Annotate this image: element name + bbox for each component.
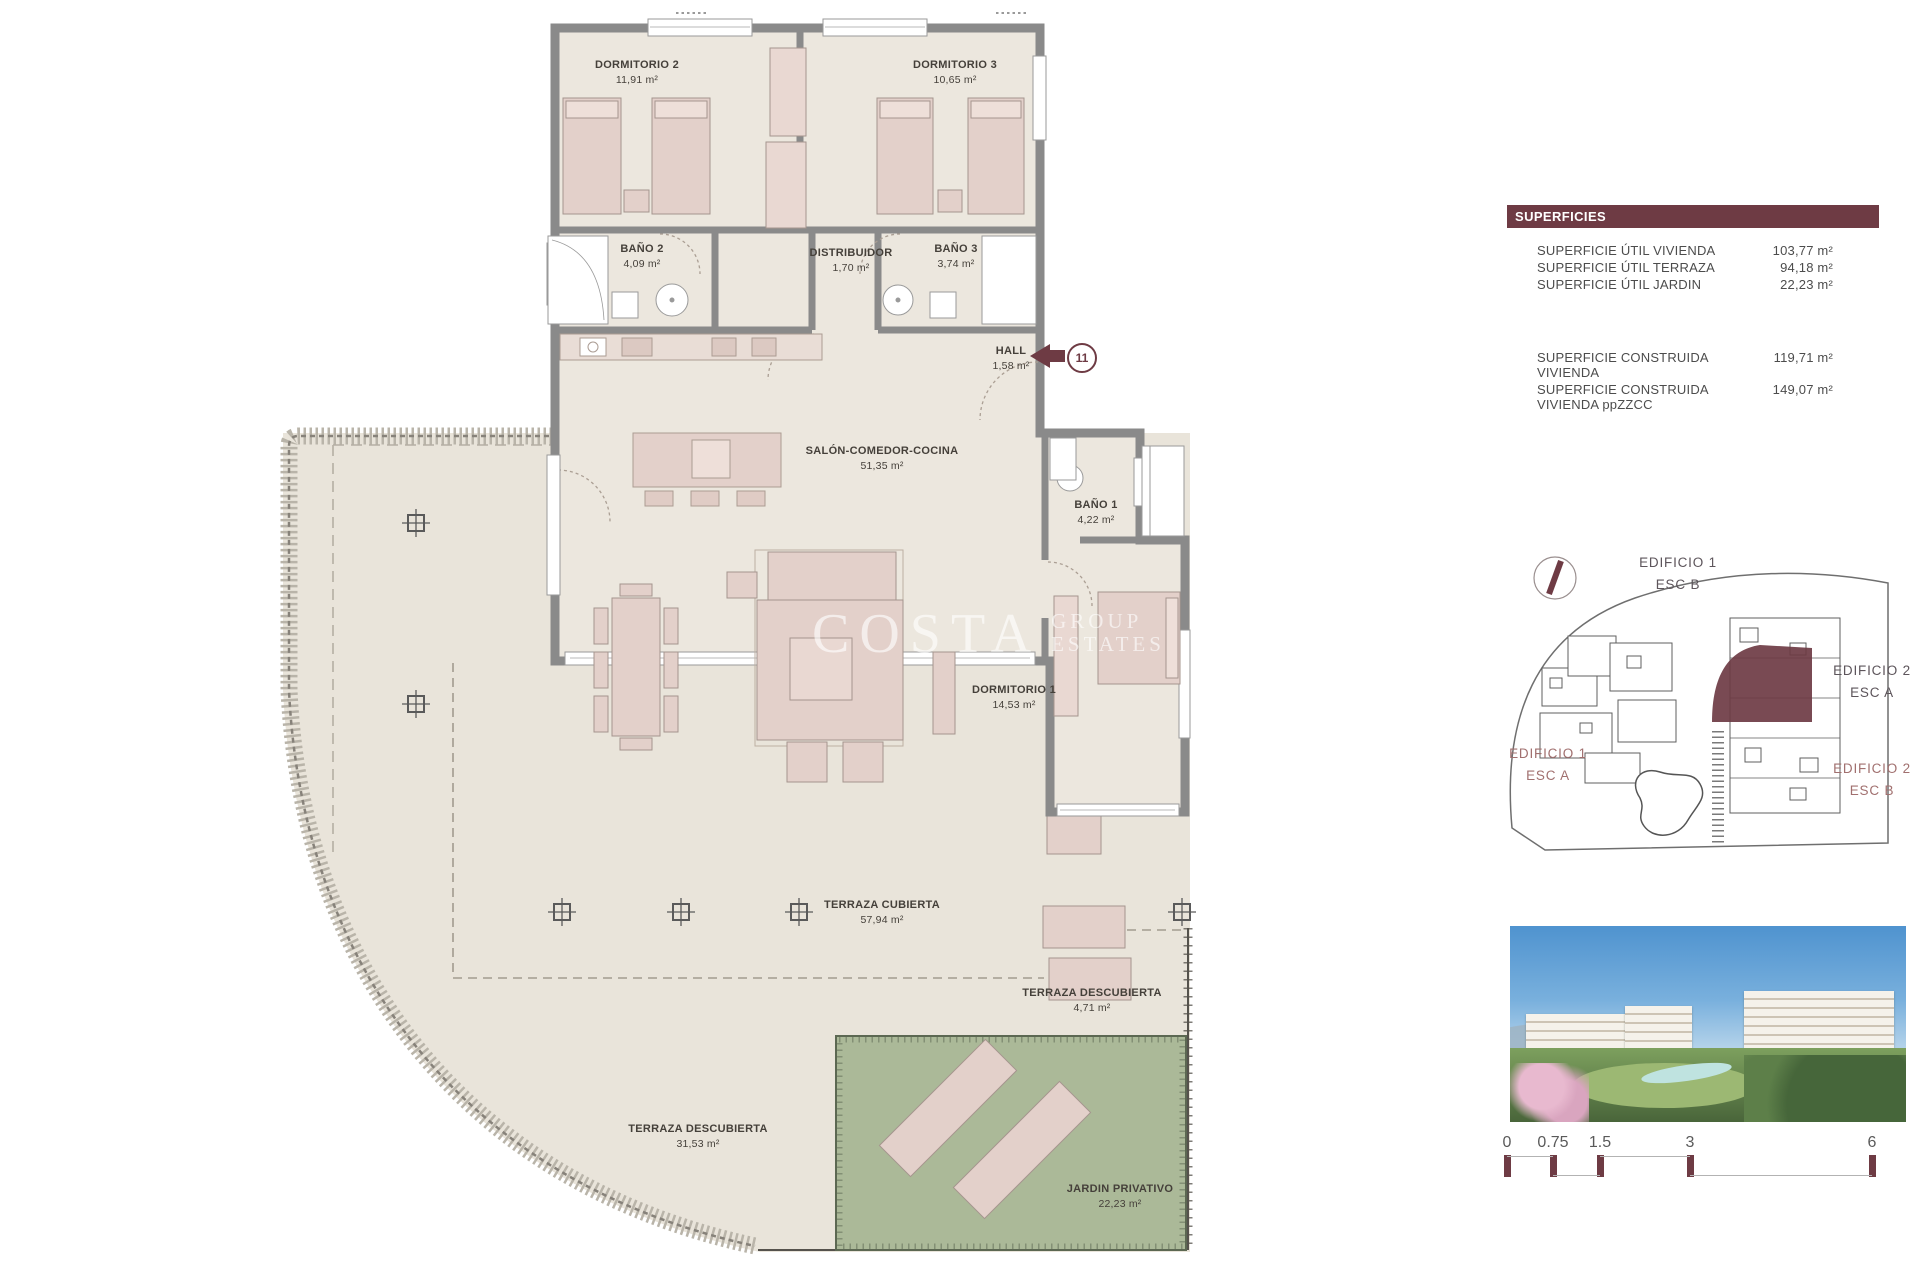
- superficies-title: SUPERFICIES: [1507, 205, 1879, 228]
- scale-line: [1553, 1175, 1600, 1176]
- siteplan-label-edificio2-escA: EDIFICIO 2 ESC A: [1833, 660, 1911, 705]
- superficies-panel: SUPERFICIES SUPERFICIE ÚTIL VIVIENDA 103…: [1507, 205, 1879, 413]
- photo-bushes: [1744, 1055, 1906, 1122]
- dining-set: [594, 584, 678, 750]
- table-row: SUPERFICIE CONSTRUIDA VIVIENDA 119,71 m²: [1507, 349, 1879, 381]
- scale-bar: 0 0.75 1.5 3 6: [1502, 1134, 1882, 1180]
- siteplan-label-edificio1-escA: EDIFICIO 1 ESC A: [1509, 743, 1587, 788]
- floor-plan-drawing: [0, 0, 1240, 1280]
- room-label-bano2: BAÑO 2 4,09 m²: [620, 242, 663, 271]
- scale-line: [1507, 1156, 1553, 1157]
- table-row: SUPERFICIE CONSTRUIDA VIVIENDA ppZZCC 14…: [1507, 381, 1879, 413]
- room-label-distribuidor: DISTRIBUIDOR 1,70 m²: [809, 246, 892, 275]
- scale-tick: [1550, 1155, 1557, 1177]
- entry-marker: 11: [1030, 342, 1100, 370]
- development-render-photo: [1510, 926, 1906, 1122]
- photo-blossom-tree: [1510, 1063, 1589, 1122]
- scale-label: 0: [1503, 1134, 1512, 1152]
- room-label-salon: SALÓN-COMEDOR-COCINA 51,35 m²: [806, 444, 959, 473]
- scale-label: 6: [1868, 1134, 1877, 1152]
- compass-icon: [1534, 557, 1576, 599]
- scale-label: 1.5: [1589, 1134, 1611, 1152]
- siteplan-label-edificio1-escB: EDIFICIO 1 ESC B: [1639, 552, 1717, 597]
- entry-arrow-tail: [1048, 350, 1065, 362]
- table-row: SUPERFICIE ÚTIL JARDIN 22,23 m²: [1507, 276, 1879, 293]
- room-label-terraza-descubierta-small: TERRAZA DESCUBIERTA 4,71 m²: [1022, 986, 1162, 1015]
- unit-number-badge: 11: [1067, 343, 1097, 373]
- table-row: SUPERFICIE ÚTIL TERRAZA 94,18 m²: [1507, 259, 1879, 276]
- room-label-bano3: BAÑO 3 3,74 m²: [934, 242, 977, 271]
- scale-tick: [1869, 1155, 1876, 1177]
- room-label-dormitorio1: DORMITORIO 1 14,53 m²: [972, 683, 1056, 712]
- room-label-bano1: BAÑO 1 4,22 m²: [1074, 498, 1117, 527]
- floor-plan-sheet: COSTA GROUP ESTATES 11 DORMITORIO 2 11,9…: [0, 0, 1920, 1280]
- site-pool: [1636, 771, 1703, 836]
- table-row: SUPERFICIE ÚTIL VIVIENDA 103,77 m²: [1507, 242, 1879, 259]
- entry-arrow-icon: [1030, 344, 1050, 368]
- scale-tick: [1687, 1155, 1694, 1177]
- scale-label: 3: [1686, 1134, 1695, 1152]
- room-label-dormitorio3: DORMITORIO 3 10,65 m²: [913, 58, 997, 87]
- scale-tick: [1504, 1155, 1511, 1177]
- scale-line: [1690, 1175, 1872, 1176]
- room-label-dormitorio2: DORMITORIO 2 11,91 m²: [595, 58, 679, 87]
- superficies-construida-rows: SUPERFICIE CONSTRUIDA VIVIENDA 119,71 m²…: [1507, 349, 1879, 413]
- room-label-terraza-cubierta: TERRAZA CUBIERTA 57,94 m²: [824, 898, 940, 927]
- room-label-terraza-descubierta-large: TERRAZA DESCUBIERTA 31,53 m²: [628, 1122, 768, 1151]
- siteplan-label-edificio2-escB: EDIFICIO 2 ESC B: [1833, 758, 1911, 803]
- scale-tick: [1597, 1155, 1604, 1177]
- room-label-hall: HALL 1,58 m²: [993, 344, 1030, 373]
- scale-label: 0.75: [1537, 1134, 1568, 1152]
- highlighted-unit: [1712, 645, 1812, 722]
- superficies-util-rows: SUPERFICIE ÚTIL VIVIENDA 103,77 m² SUPER…: [1507, 242, 1879, 293]
- scale-line: [1600, 1156, 1690, 1157]
- room-label-jardin: JARDIN PRIVATIVO 22,23 m²: [1067, 1182, 1173, 1211]
